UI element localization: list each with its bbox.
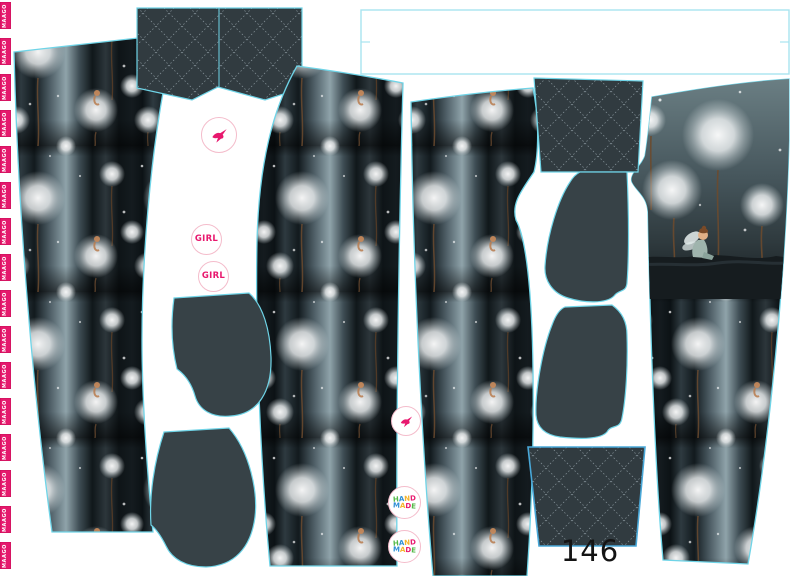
selvedge-tag: MAAGO — [0, 182, 11, 209]
selvedge-tag: MAAGO — [0, 506, 11, 533]
handmade-sticker: HANDMADE — [388, 486, 421, 519]
selvedge-tag: MAAGO — [0, 290, 11, 317]
selvedge-tag-label: MAAGO — [3, 471, 9, 495]
selvedge-tag-label: MAAGO — [3, 219, 9, 243]
legging-piece-1 — [14, 38, 165, 532]
selvedge-tag-label: MAAGO — [3, 507, 9, 531]
selvedge-tag-label: MAAGO — [3, 435, 9, 459]
selvedge-tag: MAAGO — [0, 74, 11, 101]
pocket-piece-4 — [536, 305, 627, 438]
selvedge-tag: MAAGO — [0, 218, 11, 245]
waistband-blank-outline — [361, 10, 789, 74]
hummingbird-sticker — [201, 117, 237, 153]
legging-piece-3 — [411, 88, 538, 576]
pocket-piece-3 — [545, 172, 629, 302]
handmade-sticker: HANDMADE — [388, 530, 421, 563]
selvedge-tag-label: MAAGO — [3, 363, 9, 387]
selvedge-tag: MAAGO — [0, 254, 11, 281]
legging-piece-2 — [257, 66, 403, 566]
selvedge-tag: MAAGO — [0, 362, 11, 389]
selvedge-tag-label: MAAGO — [3, 3, 9, 27]
selvedge-tag-label: MAAGO — [3, 255, 9, 279]
selvedge-tag: MAAGO — [0, 2, 11, 29]
cuff-piece-quilted — [528, 447, 645, 546]
fabric-panel-image: MAAGOMAAGOMAAGOMAAGOMAAGOMAAGOMAAGOMAAGO… — [0, 0, 792, 576]
girl-sticker: GIRL — [191, 224, 222, 255]
selvedge-tag: MAAGO — [0, 470, 11, 497]
selvedge-tag: MAAGO — [0, 146, 11, 173]
selvedge-tag-label: MAAGO — [3, 111, 9, 135]
selvedge-tag-label: MAAGO — [3, 543, 9, 567]
selvedge-tag: MAAGO — [0, 542, 11, 569]
pocket-piece-1 — [172, 293, 271, 416]
selvedge-tag-label: MAAGO — [3, 399, 9, 423]
selvedge-tag: MAAGO — [0, 326, 11, 353]
selvedge-tag-label: MAAGO — [3, 147, 9, 171]
selvedge-tag-label: MAAGO — [3, 291, 9, 315]
hummingbird-icon — [399, 414, 414, 429]
selvedge-tag-label: MAAGO — [3, 183, 9, 207]
size-label: 146 — [548, 534, 632, 568]
handmade-label-line: MADE — [393, 502, 416, 510]
pocket-piece-2 — [151, 428, 256, 567]
girl-label: GIRL — [195, 235, 218, 244]
selvedge-tag-label: MAAGO — [3, 39, 9, 63]
selvedge-tag: MAAGO — [0, 398, 11, 425]
hummingbird-sticker — [391, 406, 421, 436]
selvedge-tag-label: MAAGO — [3, 327, 9, 351]
waistband-piece-quilted-mid — [534, 78, 643, 172]
handmade-label-line: MADE — [393, 546, 416, 554]
selvedge-tag: MAAGO — [0, 38, 11, 65]
selvedge-tag-label: MAAGO — [3, 75, 9, 99]
girl-sticker: GIRL — [198, 261, 229, 292]
selvedge-tag: MAAGO — [0, 434, 11, 461]
girl-label: GIRL — [202, 272, 225, 281]
fairy-panel — [626, 78, 792, 299]
selvedge-tag: MAAGO — [0, 110, 11, 137]
hummingbird-icon — [210, 126, 229, 145]
